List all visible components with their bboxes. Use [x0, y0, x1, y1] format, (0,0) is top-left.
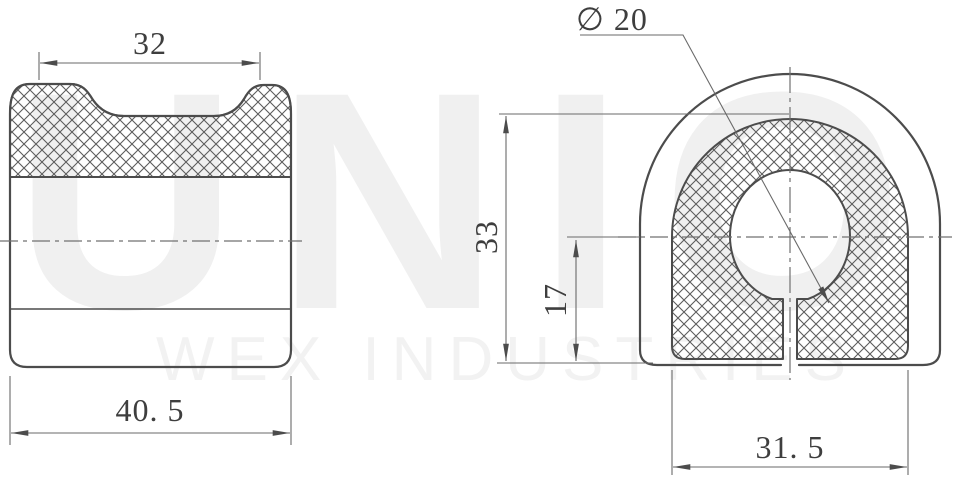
dimension-label-center-height: 17: [537, 283, 573, 317]
dimension-label-overall-width: 40. 5: [116, 392, 185, 428]
dimension-label-bottom-width: 31. 5: [756, 429, 825, 465]
dimension-label-top-width: 32: [133, 25, 167, 61]
dimension-label-overall-height: 33: [468, 220, 504, 254]
drawing-canvas: UNIO WEX INDUSTRIES 32: [0, 0, 956, 477]
hole-diameter-label: ∅ 20: [576, 1, 648, 37]
bushing-technical-drawing: UNIO WEX INDUSTRIES 32: [0, 0, 956, 477]
